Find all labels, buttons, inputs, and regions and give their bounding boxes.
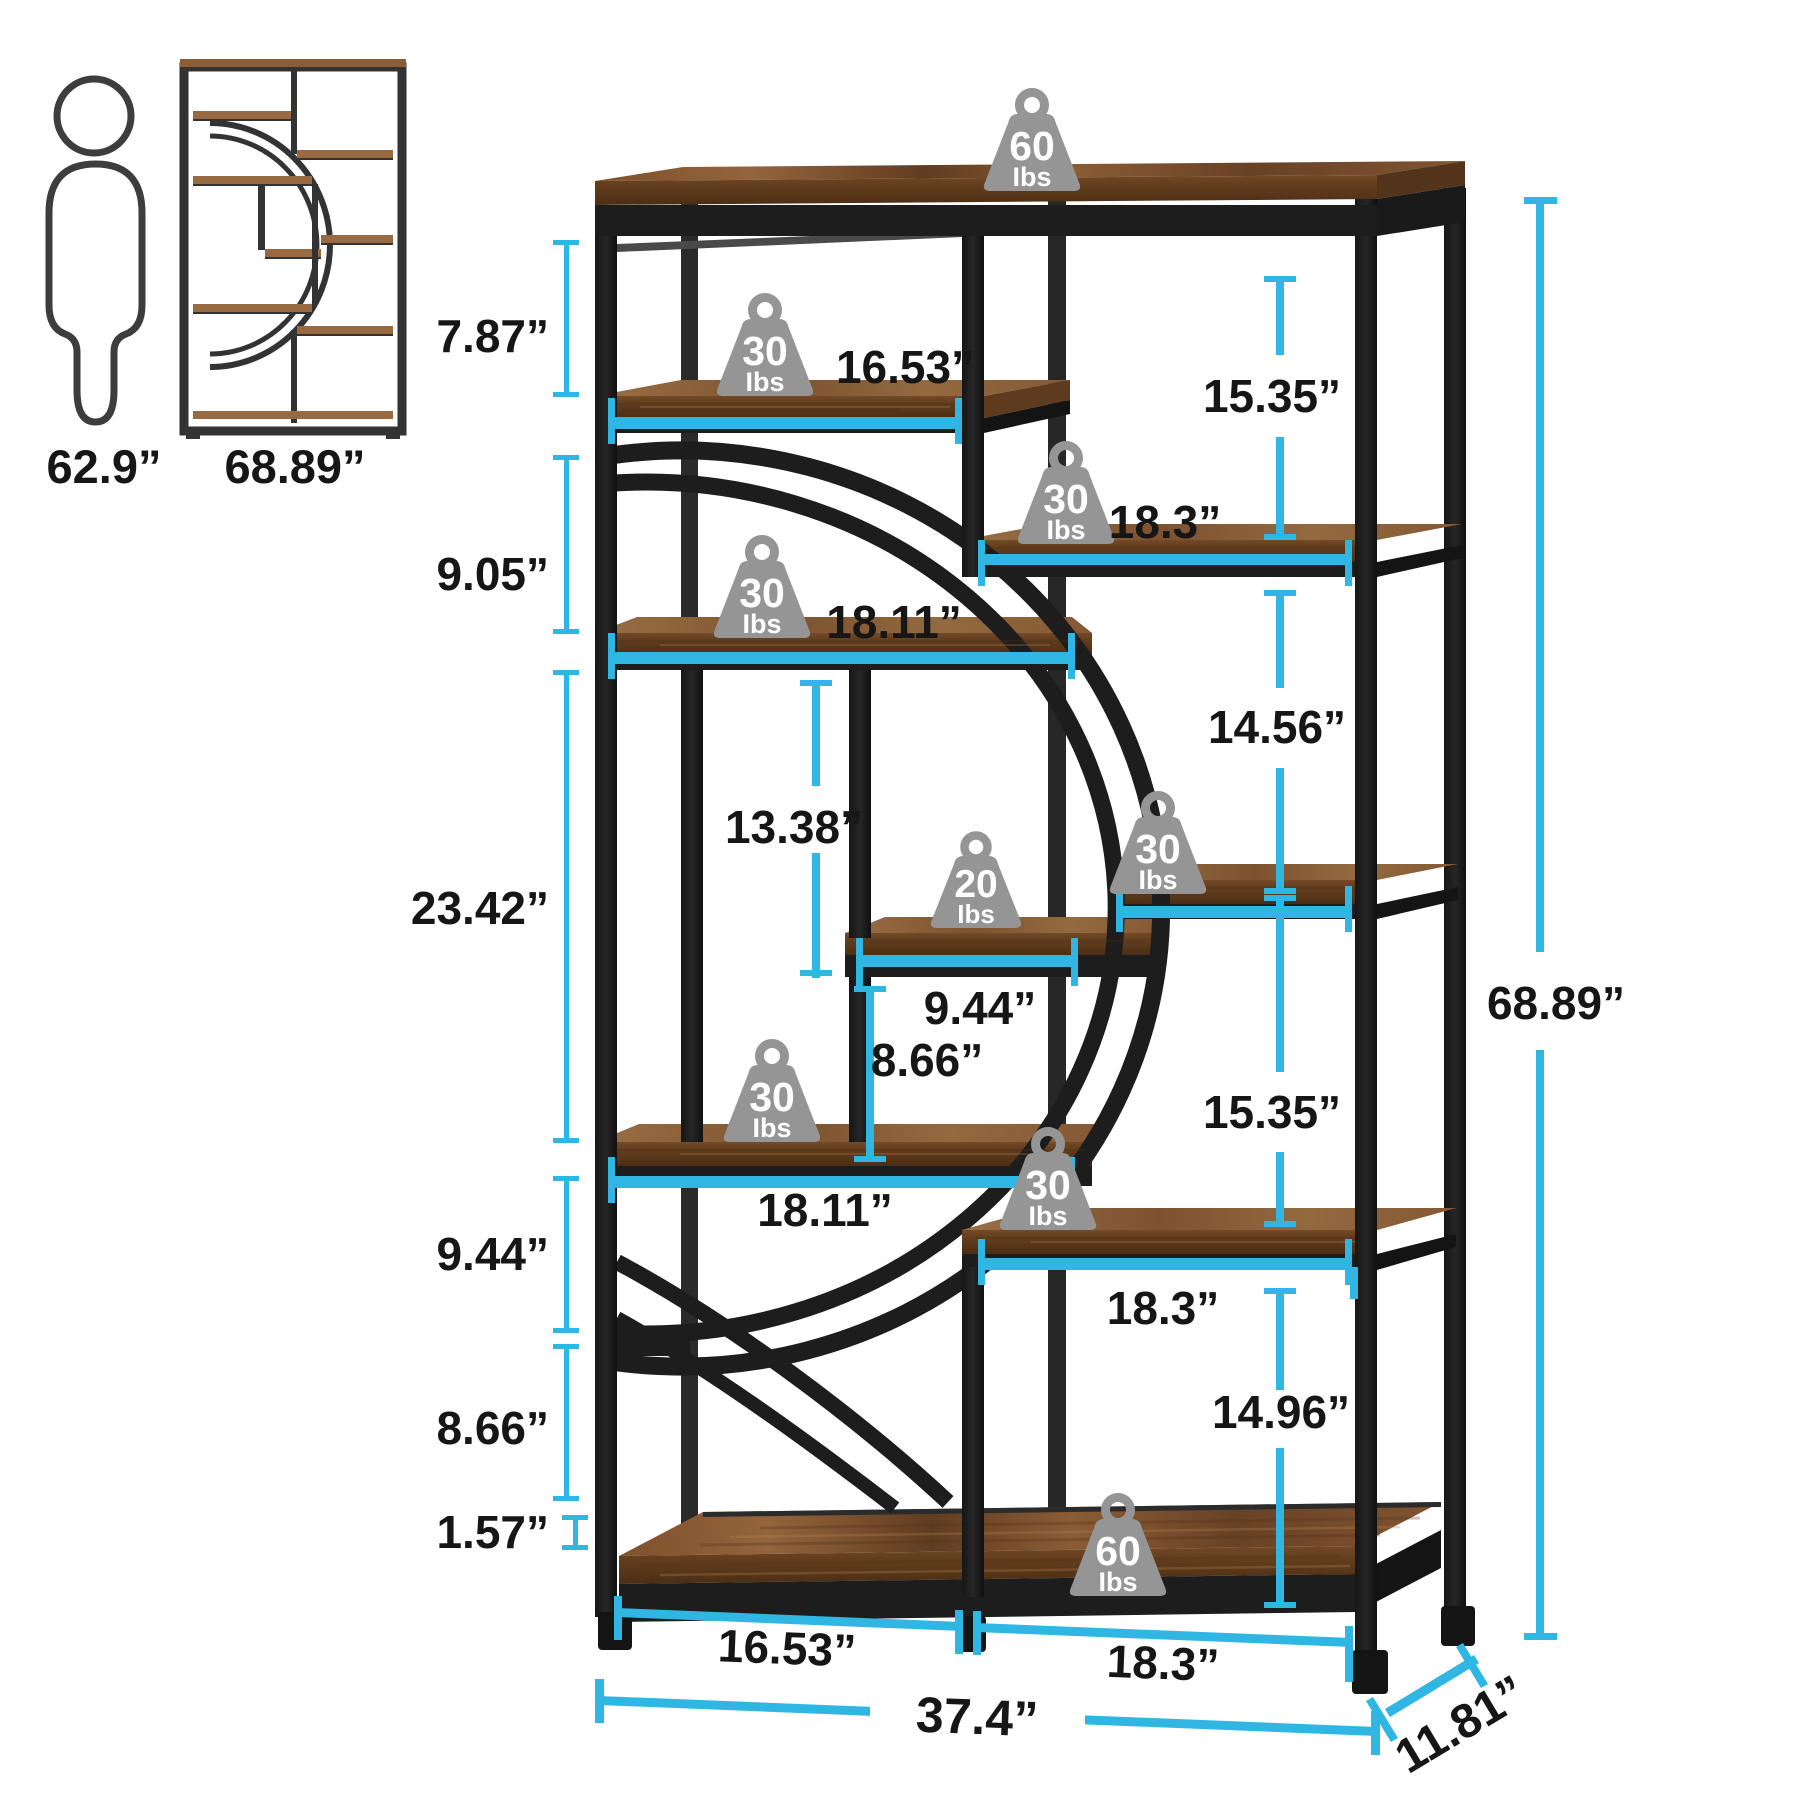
svg-text:68.89”: 68.89” [1487,977,1625,1029]
svg-text:18.3”: 18.3” [1107,1282,1220,1334]
svg-text:23.42”: 23.42” [411,882,549,934]
svg-text:16.53”: 16.53” [836,341,974,393]
svg-text:62.9”: 62.9” [47,440,162,493]
svg-text:15.35”: 15.35” [1203,1086,1341,1138]
svg-text:7.87”: 7.87” [436,310,549,362]
svg-text:15.35”: 15.35” [1203,370,1341,422]
svg-text:18.11”: 18.11” [826,596,962,648]
svg-text:9.44”: 9.44” [436,1228,549,1280]
svg-text:1.57”: 1.57” [436,1506,549,1558]
svg-text:18.3”: 18.3” [1109,496,1222,548]
svg-text:9.05”: 9.05” [436,548,549,600]
svg-text:14.96”: 14.96” [1212,1386,1350,1438]
svg-text:16.53”: 16.53” [717,1619,857,1677]
svg-text:13.38”: 13.38” [725,801,863,853]
svg-text:68.89”: 68.89” [224,440,365,493]
svg-text:8.66”: 8.66” [871,1034,984,1086]
svg-text:8.66”: 8.66” [436,1402,549,1454]
svg-text:37.4”: 37.4” [915,1687,1039,1748]
svg-text:14.56”: 14.56” [1208,701,1346,753]
svg-text:9.44”: 9.44” [924,982,1037,1034]
svg-text:18.11”: 18.11” [757,1184,893,1236]
svg-text:18.3”: 18.3” [1106,1635,1221,1691]
